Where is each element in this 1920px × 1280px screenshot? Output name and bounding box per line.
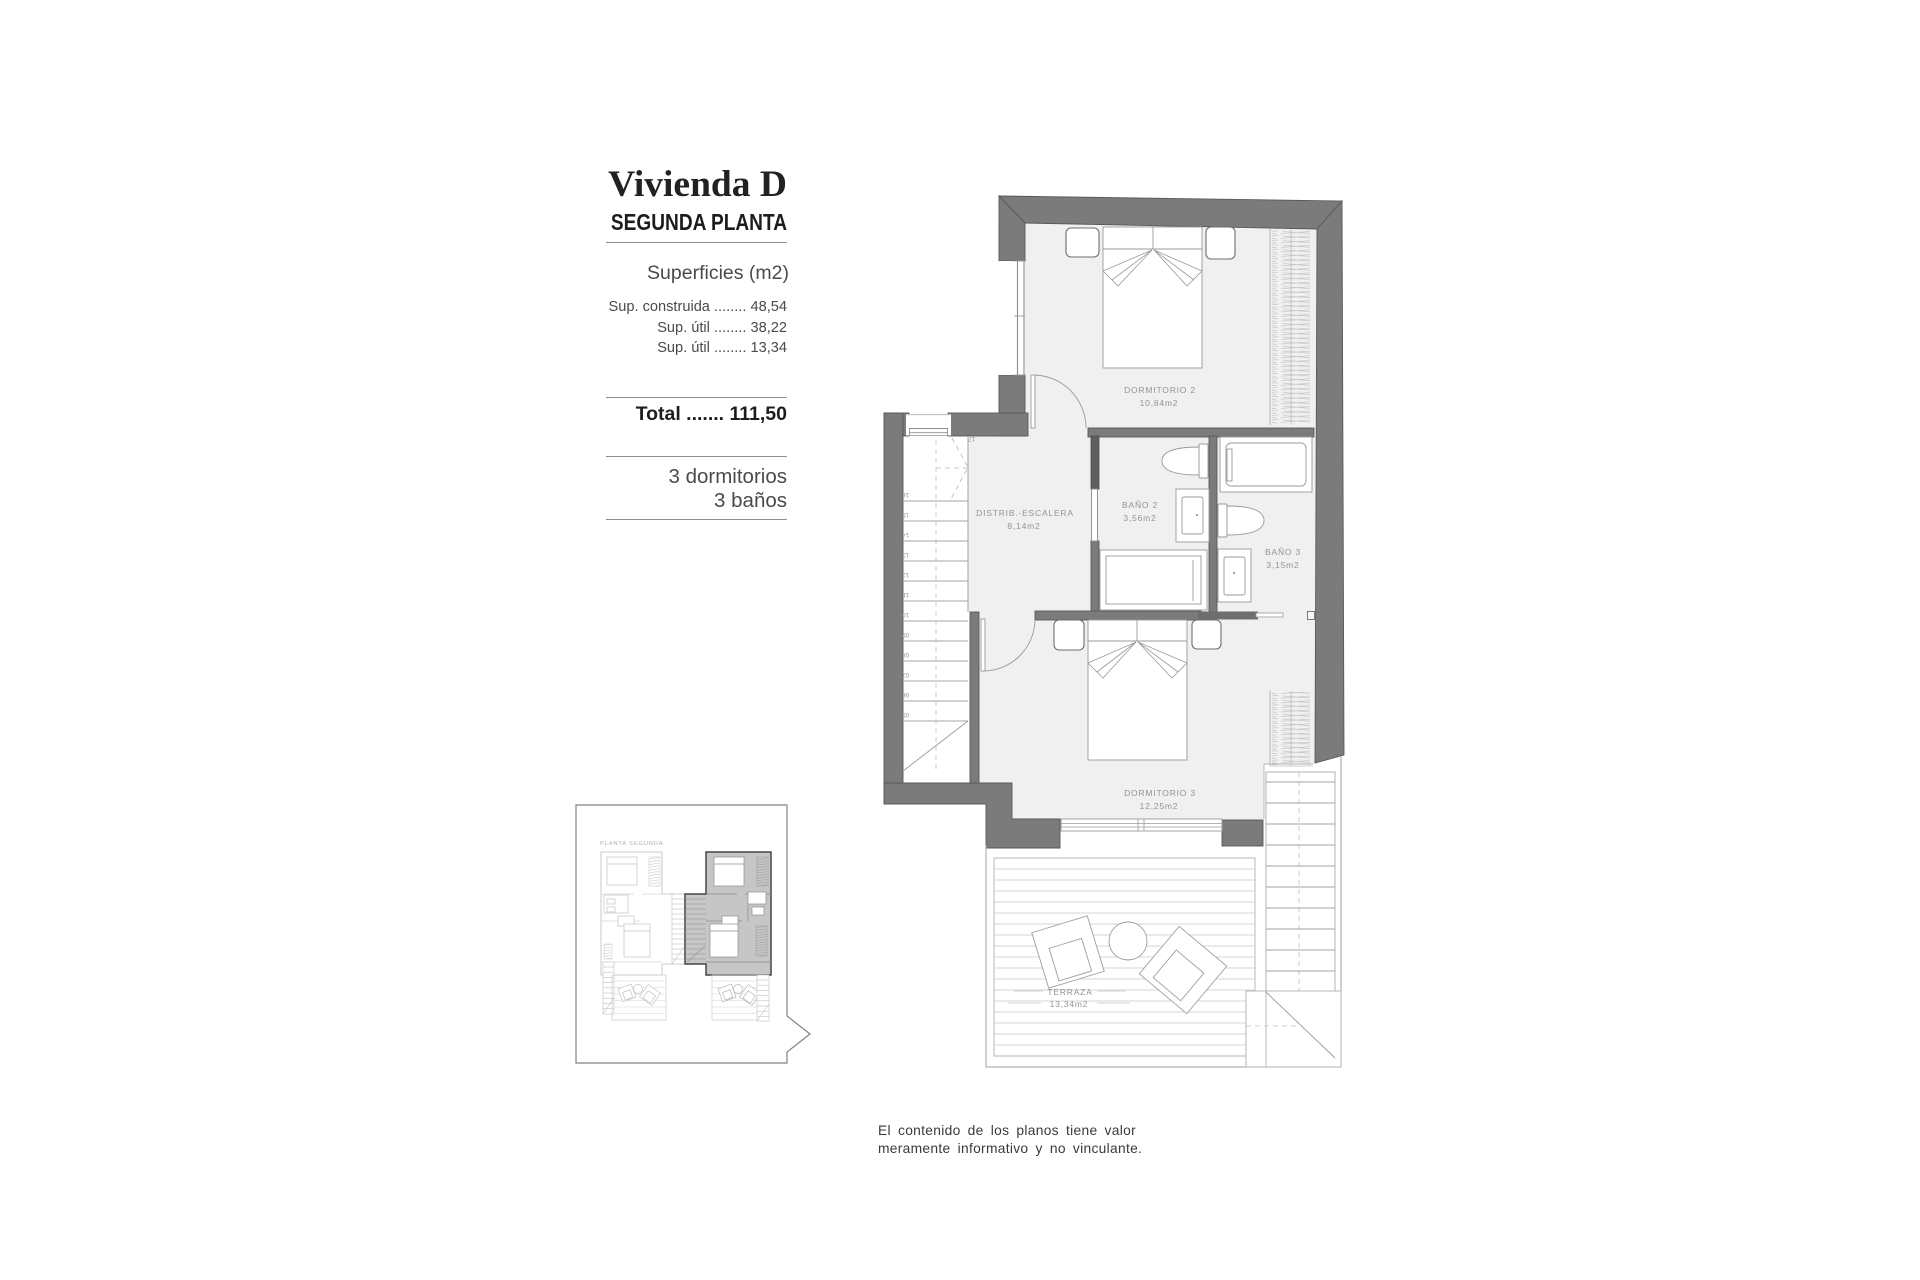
svg-text:DISTRIB.-ESCALERA: DISTRIB.-ESCALERA [976,508,1074,518]
svg-text:07: 07 [902,671,909,677]
svg-text:BAÑO 3: BAÑO 3 [1265,547,1301,557]
svg-text:BAÑO 2: BAÑO 2 [1122,500,1158,510]
svg-text:06: 06 [902,691,909,697]
svg-text:PLANTA SEGUNDA: PLANTA SEGUNDA [600,841,663,847]
svg-text:16: 16 [902,491,909,497]
svg-text:11: 11 [902,591,909,597]
svg-text:10: 10 [902,611,909,617]
svg-text:12: 12 [902,571,909,577]
svg-text:13,34m2: 13,34m2 [1050,999,1089,1009]
svg-text:17: 17 [968,435,975,441]
svg-text:05: 05 [902,711,909,717]
svg-text:3,56m2: 3,56m2 [1123,513,1156,523]
svg-text:13: 13 [902,551,909,557]
svg-text:09: 09 [902,631,909,637]
svg-text:10,84m2: 10,84m2 [1140,398,1179,408]
svg-text:DORMITORIO 3: DORMITORIO 3 [1124,788,1196,798]
svg-text:08: 08 [902,651,909,657]
svg-text:8,14m2: 8,14m2 [1007,521,1040,531]
svg-text:12,25m2: 12,25m2 [1140,801,1179,811]
svg-text:TERRAZA: TERRAZA [1047,987,1092,997]
svg-text:14: 14 [902,531,909,537]
svg-text:3,15m2: 3,15m2 [1266,560,1299,570]
svg-text:DORMITORIO 2: DORMITORIO 2 [1124,385,1196,395]
svg-text:15: 15 [902,511,909,517]
